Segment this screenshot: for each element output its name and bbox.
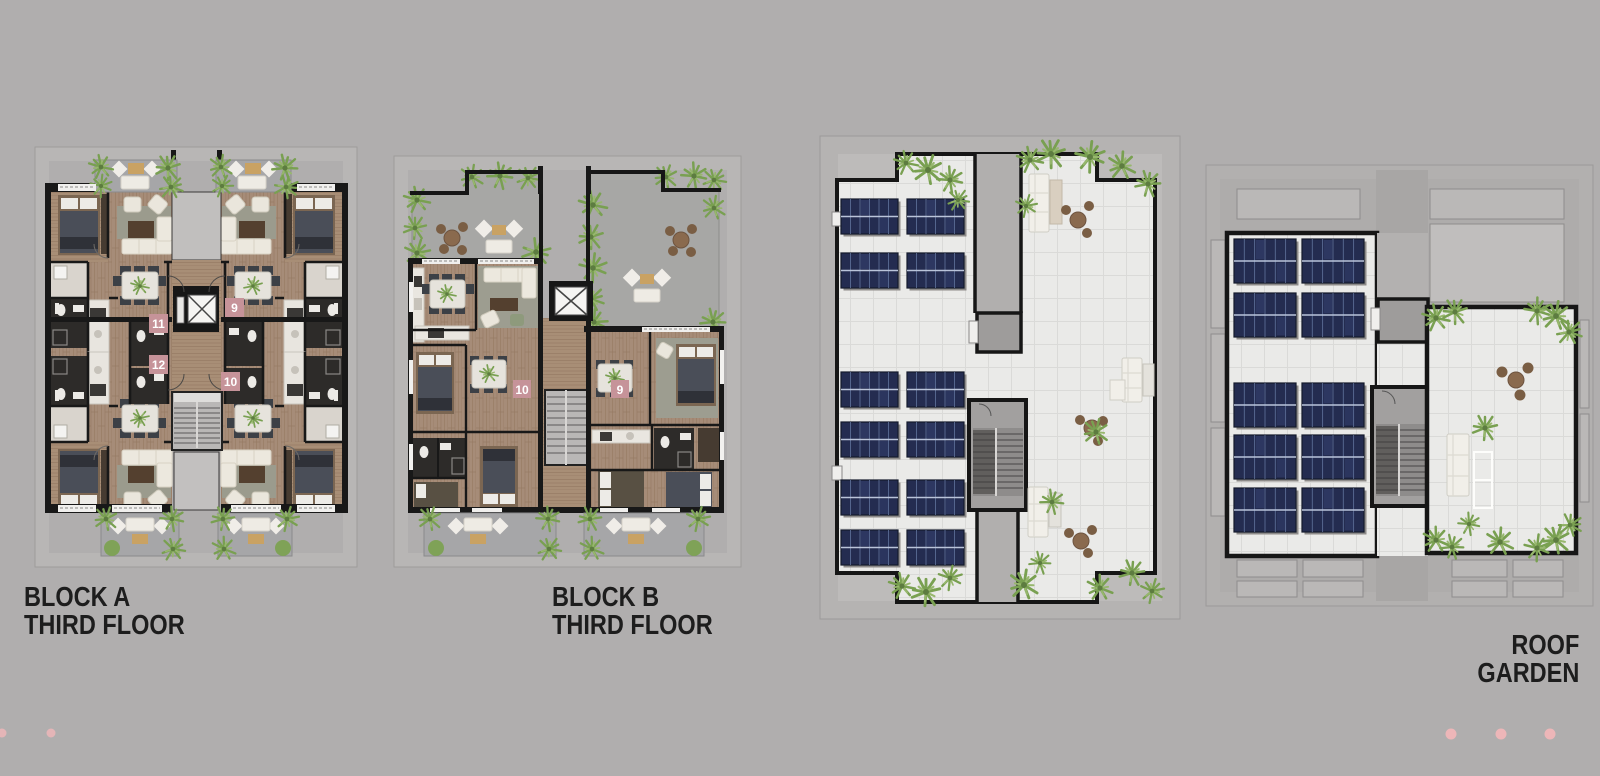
svg-text:11: 11 (152, 317, 165, 331)
svg-text:9: 9 (617, 383, 624, 397)
svg-text:10: 10 (515, 383, 529, 397)
svg-text:9: 9 (231, 301, 238, 315)
svg-text:10: 10 (224, 375, 238, 389)
svg-text:12: 12 (152, 358, 166, 372)
